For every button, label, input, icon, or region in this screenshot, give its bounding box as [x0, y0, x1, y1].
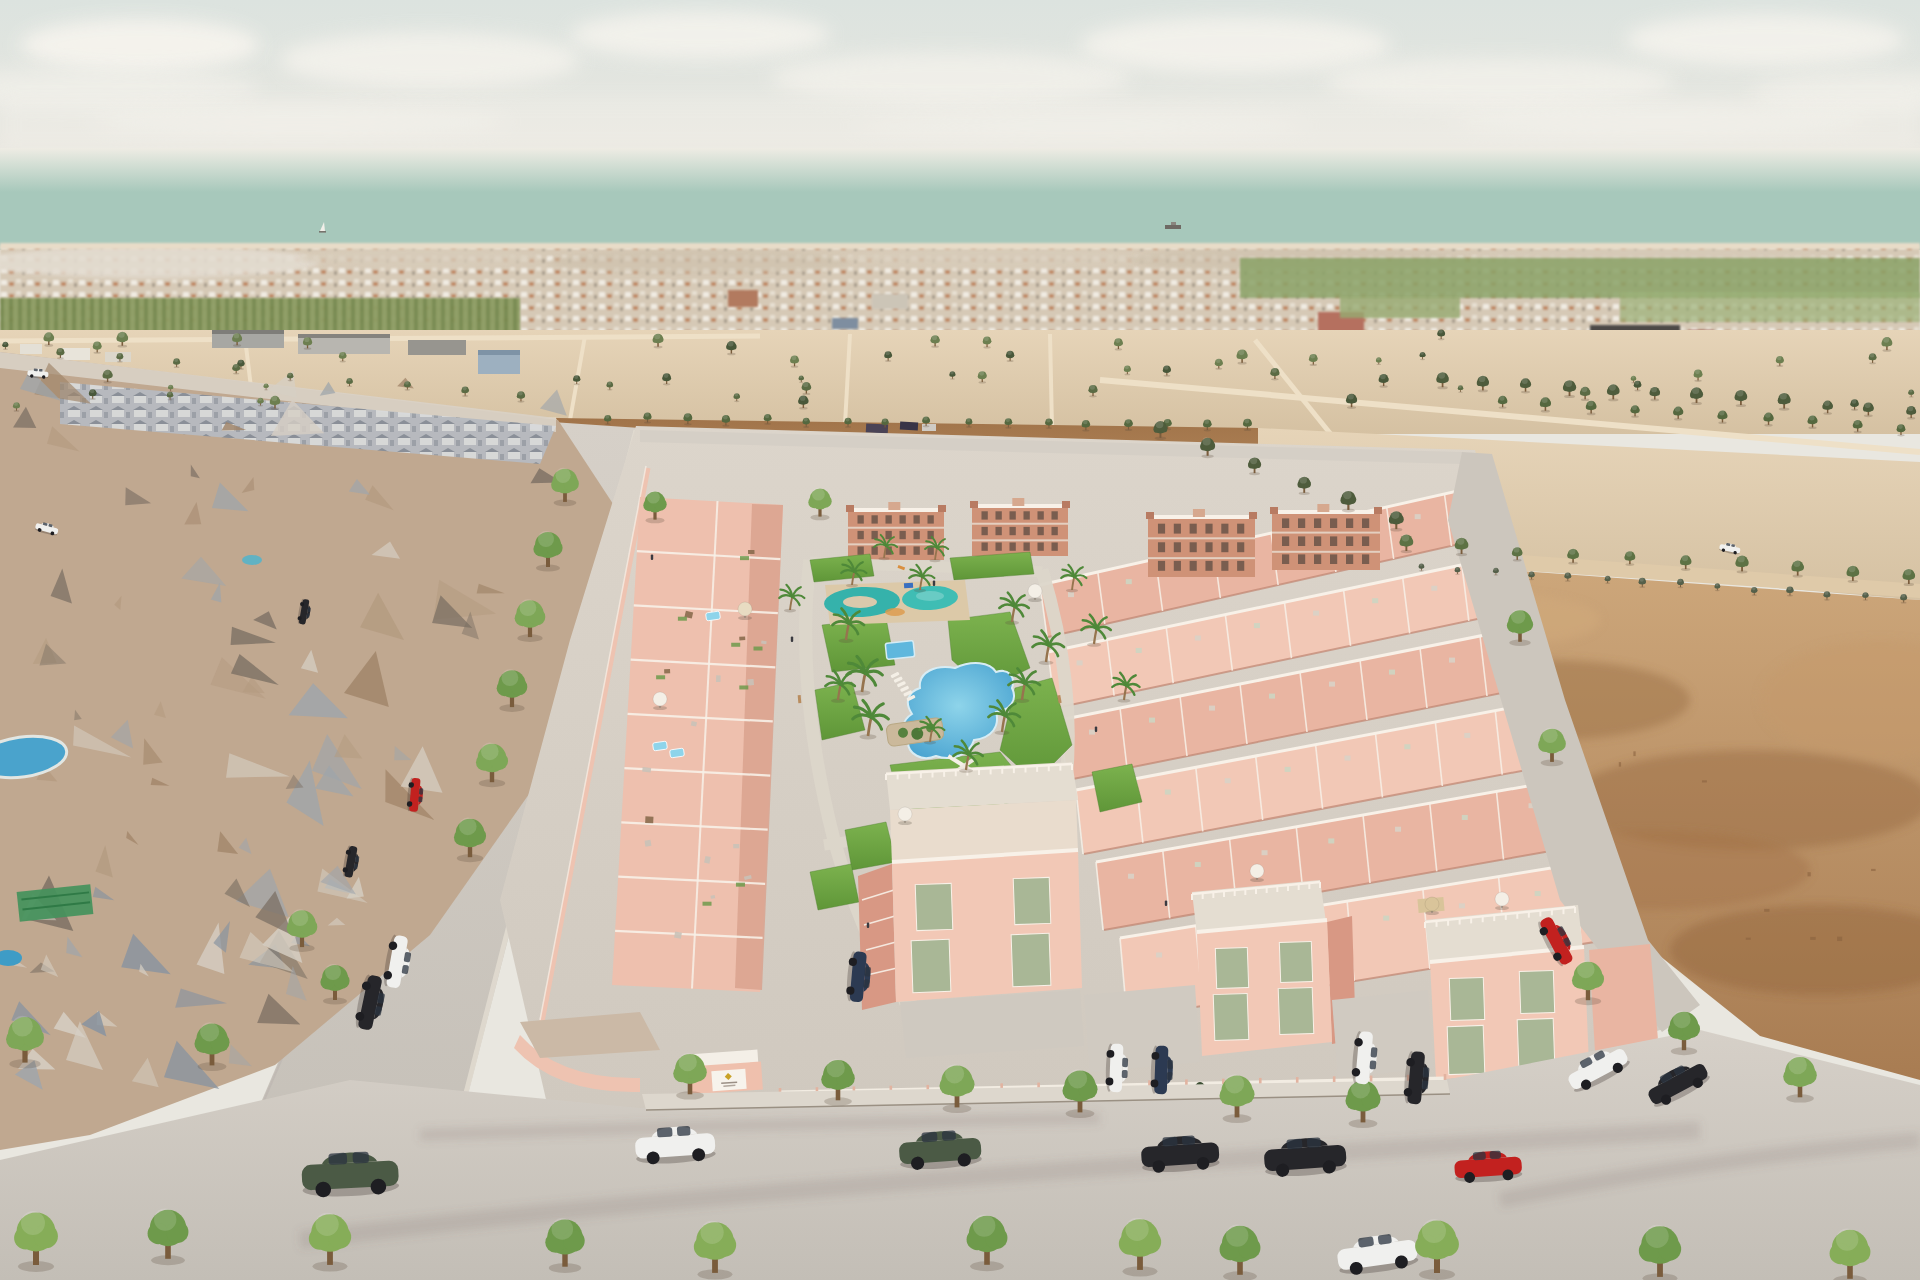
- balustrade-post: [1298, 884, 1300, 890]
- apartment-window: [1298, 536, 1305, 546]
- apartment-window: [1190, 561, 1197, 571]
- cloud: [1080, 17, 1390, 73]
- playground: [904, 583, 913, 589]
- apartment-window: [982, 527, 988, 535]
- string-course: [1148, 557, 1255, 559]
- balustrade-post: [1036, 766, 1038, 772]
- balustrade-post: [1459, 919, 1461, 925]
- parasol: [653, 692, 667, 710]
- apartment-window: [1282, 554, 1289, 564]
- balustrade-post: [990, 768, 992, 774]
- balustrade-post: [920, 772, 922, 778]
- roof-detail: [1068, 592, 1074, 597]
- roof-detail: [1395, 827, 1401, 832]
- corner-tower: [1374, 507, 1382, 514]
- roof-detail: [1345, 756, 1351, 761]
- apartment-window: [1314, 554, 1321, 564]
- apartment-window: [1010, 527, 1016, 535]
- balustrade-post: [932, 772, 934, 778]
- small-pool: [885, 641, 915, 660]
- apartment-window: [1282, 518, 1289, 528]
- roof-detail: [1149, 718, 1155, 723]
- apartment-window: [1282, 536, 1289, 546]
- truck: [900, 422, 918, 431]
- apartment-window: [1174, 542, 1181, 552]
- apartment-window: [1314, 536, 1321, 546]
- apartment-window: [1221, 524, 1228, 534]
- balustrade-post: [1255, 888, 1257, 894]
- right-villa-3-partial: [1589, 944, 1658, 1052]
- person: [1165, 901, 1167, 907]
- apartment-window: [1052, 511, 1058, 519]
- apartment-window: [1038, 527, 1044, 535]
- apartment-window: [886, 515, 892, 523]
- parasol: [1425, 897, 1439, 915]
- roof-detail: [1165, 790, 1171, 795]
- apartment-window: [858, 515, 864, 523]
- roof-detail: [1089, 730, 1095, 735]
- roof-detail: [1156, 952, 1162, 957]
- roof-detail: [1225, 778, 1231, 783]
- rock: [1810, 937, 1816, 940]
- apartment-window: [1221, 542, 1228, 552]
- apartment-window: [1298, 518, 1305, 528]
- terrace-hedge: [678, 617, 687, 621]
- driveway: [1084, 985, 1200, 1072]
- terrace-hedge: [739, 685, 748, 689]
- roof-detail: [1209, 706, 1215, 711]
- apartment-window: [858, 546, 864, 554]
- balustrade-post: [897, 773, 899, 779]
- person: [651, 555, 653, 561]
- balustrade-post: [885, 774, 887, 780]
- balustrade-post: [1059, 765, 1061, 771]
- apartment-window: [900, 546, 906, 554]
- parasol: [1495, 892, 1509, 910]
- person: [791, 637, 793, 643]
- balustrade-post: [1287, 885, 1289, 891]
- beach-strip: [0, 243, 1920, 249]
- scene-canvas: [0, 0, 1920, 1280]
- roof-furniture: [716, 675, 721, 682]
- apartment-window: [1330, 554, 1337, 564]
- balustrade-post: [1528, 912, 1530, 918]
- apartment-window: [1158, 561, 1165, 571]
- plunge-pool: [670, 748, 685, 758]
- entrance-sign: [711, 1069, 746, 1091]
- balustrade-post: [1319, 882, 1321, 888]
- corner-tower: [938, 505, 946, 512]
- roof-detail: [1449, 658, 1455, 663]
- cloud: [570, 11, 830, 59]
- balustrade-post: [1048, 765, 1050, 771]
- balustrade-post: [955, 770, 957, 776]
- apartment-block: [1146, 509, 1257, 577]
- roof-detail: [1329, 682, 1335, 687]
- balustrade-post: [1025, 767, 1027, 773]
- terrace-hedge: [731, 643, 740, 647]
- balustrade-post: [908, 773, 910, 779]
- apartment-window: [1330, 518, 1337, 528]
- stair-bulkhead: [1012, 498, 1024, 506]
- apartment-window: [982, 542, 988, 550]
- apartment-window: [1237, 542, 1244, 552]
- stair-bulkhead: [888, 502, 900, 510]
- balustrade-post: [1470, 917, 1472, 923]
- rock: [1619, 762, 1621, 767]
- balustrade-post: [1574, 907, 1576, 913]
- cloud: [20, 19, 260, 71]
- roof-detail: [1285, 767, 1291, 772]
- apartment-window: [1038, 511, 1044, 519]
- roof-detail: [1269, 694, 1275, 699]
- left-townhouse-block: [612, 497, 783, 992]
- apartment-window: [1346, 536, 1353, 546]
- terrace-hedge: [754, 647, 763, 651]
- balustrade-post: [1001, 768, 1003, 774]
- plunge-pool: [706, 611, 721, 621]
- roof-detail: [1535, 891, 1541, 896]
- corner-tower: [1062, 501, 1070, 508]
- corner-tower: [846, 505, 854, 512]
- string-course: [1148, 537, 1255, 539]
- apartment-window: [1158, 524, 1165, 534]
- roof-furniture: [739, 636, 745, 640]
- cloud: [280, 32, 580, 88]
- roof-detail: [1126, 579, 1132, 584]
- roof-detail: [1431, 586, 1437, 591]
- apartment-window: [914, 515, 920, 523]
- roof-detail: [1389, 670, 1395, 675]
- terrace-hedge: [656, 675, 665, 679]
- parasol: [738, 602, 752, 620]
- apartment-window: [1237, 561, 1244, 571]
- parasol: [898, 807, 912, 825]
- apartment-window: [1052, 542, 1058, 550]
- person: [933, 581, 935, 587]
- balustrade-post: [1234, 890, 1236, 896]
- roof-detail: [1415, 514, 1421, 519]
- balustrade-post: [1516, 913, 1518, 919]
- apartment-window: [1205, 561, 1212, 571]
- apartment-window: [996, 527, 1002, 535]
- neighbor-pool: [242, 555, 262, 565]
- apartment-window: [1346, 518, 1353, 528]
- apartment-window: [982, 511, 988, 519]
- trailer: [922, 424, 936, 431]
- apartment-window: [1362, 554, 1369, 564]
- roof-detail: [1462, 815, 1468, 820]
- roof-furniture: [747, 679, 754, 686]
- rock: [1871, 869, 1876, 871]
- apartment-window: [1024, 511, 1030, 519]
- apartment-window: [1038, 542, 1044, 550]
- apartment-window: [914, 546, 920, 554]
- balustrade-post: [1244, 889, 1246, 895]
- apartment-window: [1221, 561, 1228, 571]
- driveway: [900, 990, 1084, 1058]
- roof-detail: [1404, 744, 1410, 749]
- rock: [1764, 909, 1769, 912]
- roof-detail: [1195, 862, 1201, 867]
- apartment-window: [1346, 554, 1353, 564]
- apartment-window: [996, 542, 1002, 550]
- pool-island: [843, 596, 877, 608]
- apartment-window: [928, 515, 934, 523]
- stair-bulkhead: [1317, 504, 1329, 512]
- rock: [1746, 938, 1751, 940]
- balustrade-post: [1562, 908, 1564, 914]
- balustrade-post: [1223, 891, 1225, 897]
- balustrade-post: [1447, 920, 1449, 926]
- roof-detail: [1459, 903, 1465, 908]
- apartment-window: [1174, 561, 1181, 571]
- right-villa-2: [1417, 897, 1589, 1080]
- roof-detail: [1262, 850, 1268, 855]
- roof-detail: [1383, 916, 1389, 921]
- balustrade-post: [1493, 915, 1495, 921]
- parasol: [1028, 584, 1042, 602]
- person: [867, 923, 869, 929]
- corner-tower: [1249, 512, 1257, 519]
- apartment-window: [1237, 524, 1244, 534]
- apartment-block: [1270, 504, 1382, 570]
- apartment-window: [1362, 536, 1369, 546]
- rock: [1807, 872, 1810, 876]
- roof-detail: [1077, 660, 1083, 665]
- string-course: [848, 527, 944, 529]
- balustrade-post: [1436, 921, 1438, 927]
- rock: [1837, 937, 1842, 941]
- corner-tower: [970, 501, 978, 508]
- balustrade-post: [1424, 922, 1426, 928]
- roof-detail: [1372, 598, 1378, 603]
- terrace-hedge: [703, 902, 712, 906]
- roof-furniture: [711, 895, 716, 899]
- apartment-window: [1174, 524, 1181, 534]
- balustrade-post: [1013, 767, 1015, 773]
- roof-detail: [1464, 733, 1470, 738]
- balustrade-post: [1308, 883, 1310, 889]
- string-course: [972, 523, 1068, 525]
- roof-detail: [1128, 874, 1134, 879]
- balustrade-post: [1276, 886, 1278, 892]
- apartment-window: [1205, 542, 1212, 552]
- roof-furniture: [748, 550, 755, 554]
- roof-detail: [1313, 611, 1319, 616]
- apartment-window: [900, 515, 906, 523]
- roof-furniture: [645, 816, 653, 823]
- apartment-window: [872, 531, 878, 539]
- balustrade-post: [1539, 910, 1541, 916]
- roof-furniture: [645, 840, 652, 847]
- apartment-window: [1190, 524, 1197, 534]
- stair-bulkhead: [1193, 509, 1205, 517]
- balustrade-post: [978, 769, 980, 775]
- balustrade-post: [1071, 764, 1073, 770]
- balustrade-post: [1212, 892, 1214, 898]
- cloud: [1625, 14, 1905, 66]
- roof-furniture: [674, 932, 682, 939]
- corner-tower: [1146, 512, 1154, 519]
- aerial-render: [0, 0, 1920, 1280]
- person: [1095, 727, 1097, 733]
- balustrade-post: [1482, 916, 1484, 922]
- apartment-window: [858, 531, 864, 539]
- apartment-window: [914, 531, 920, 539]
- parasol: [1250, 864, 1264, 882]
- sea-haze: [0, 148, 1920, 192]
- corner-tower: [1270, 507, 1278, 514]
- apartment-window: [1362, 518, 1369, 528]
- balustrade-post: [1202, 893, 1204, 899]
- apartment-block: [970, 498, 1070, 556]
- string-course: [1272, 551, 1380, 553]
- roof-detail: [1195, 636, 1201, 641]
- apartment-window: [1024, 527, 1030, 535]
- apartment-window: [1190, 542, 1197, 552]
- tree: [1897, 424, 1906, 436]
- apartment-window: [1298, 554, 1305, 564]
- plunge-pool: [653, 741, 668, 751]
- string-course: [972, 539, 1068, 541]
- apartment-window: [1010, 511, 1016, 519]
- roof-furniture: [733, 844, 739, 848]
- roof-detail: [1254, 623, 1260, 628]
- rock: [1702, 780, 1707, 782]
- roof-detail: [1328, 838, 1334, 843]
- apartment-window: [1158, 542, 1165, 552]
- apartment-window: [996, 511, 1002, 519]
- apartment-window: [1024, 542, 1030, 550]
- apartment-window: [1314, 518, 1321, 528]
- apartment-window: [1205, 524, 1212, 534]
- string-course: [1272, 532, 1380, 534]
- roof-furniture: [664, 669, 670, 673]
- balustrade-post: [1266, 887, 1268, 893]
- apartment-window: [1330, 536, 1337, 546]
- cloud-haze-band: [0, 96, 1920, 154]
- balustrade-post: [1191, 894, 1193, 900]
- apartment-window: [900, 531, 906, 539]
- apartment-window: [1010, 542, 1016, 550]
- terrace-hedge: [740, 556, 749, 560]
- apartment-window: [872, 515, 878, 523]
- balustrade-post: [1505, 914, 1507, 920]
- rock: [1633, 751, 1635, 756]
- balustrade-post: [1551, 909, 1553, 915]
- apartment-window: [1052, 527, 1058, 535]
- roof-detail: [1136, 648, 1142, 653]
- apartment-block: [846, 502, 946, 560]
- terrace-hedge: [736, 883, 745, 887]
- balustrade-post: [943, 771, 945, 777]
